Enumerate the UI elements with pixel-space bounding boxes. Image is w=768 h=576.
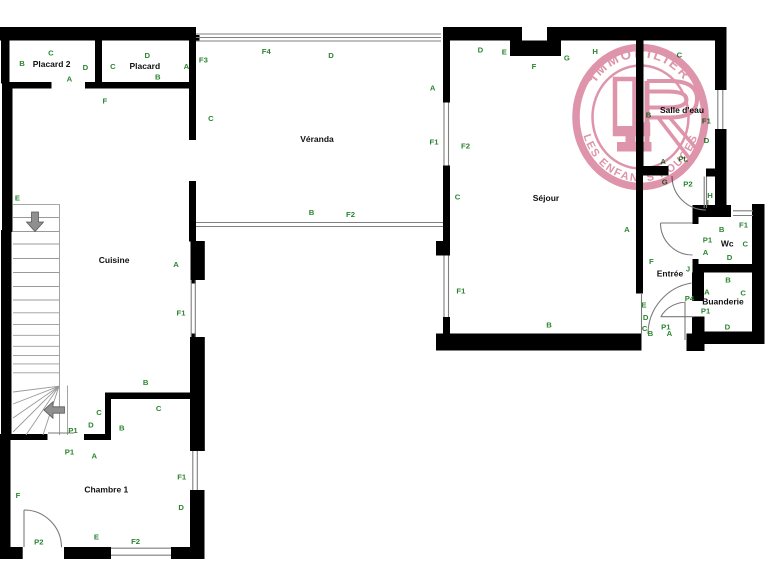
svg-text:D: D (478, 46, 484, 55)
svg-text:P1: P1 (68, 426, 78, 435)
svg-text:J: J (686, 265, 690, 274)
svg-text:F4: F4 (262, 47, 272, 56)
svg-text:H: H (592, 47, 598, 56)
svg-text:A: A (184, 62, 190, 71)
svg-text:D: D (83, 63, 89, 72)
svg-text:B: B (119, 423, 125, 432)
svg-text:A: A (173, 260, 179, 269)
svg-text:G: G (564, 54, 570, 63)
svg-text:C: C (110, 62, 116, 71)
svg-text:B: B (155, 72, 161, 81)
svg-text:B: B (19, 59, 25, 68)
svg-text:Buanderie: Buanderie (702, 297, 744, 307)
svg-text:Wc: Wc (721, 239, 734, 249)
svg-text:F1: F1 (177, 472, 187, 481)
svg-text:B: B (725, 276, 731, 285)
svg-text:F: F (16, 491, 21, 500)
svg-text:B: B (648, 329, 654, 338)
svg-text:P1: P1 (65, 448, 75, 457)
svg-text:A: A (703, 248, 709, 257)
svg-text:A: A (430, 84, 436, 93)
svg-text:P1: P1 (701, 306, 711, 315)
svg-text:F3: F3 (199, 55, 208, 64)
svg-text:F2: F2 (346, 210, 355, 219)
svg-text:Cuisine: Cuisine (99, 255, 130, 265)
svg-text:A: A (92, 451, 98, 460)
svg-text:D: D (328, 51, 334, 60)
svg-text:C: C (743, 240, 749, 249)
svg-text:A: A (624, 225, 630, 234)
svg-text:Placard 2: Placard 2 (33, 59, 71, 69)
svg-text:C: C (208, 114, 214, 123)
svg-text:B: B (719, 225, 725, 234)
svg-text:D: D (145, 51, 151, 60)
svg-text:C: C (96, 408, 102, 417)
svg-text:E: E (641, 300, 646, 309)
svg-text:B: B (546, 321, 552, 330)
svg-text:F2: F2 (131, 537, 140, 546)
svg-text:C: C (740, 289, 746, 298)
svg-text:B: B (143, 378, 149, 387)
svg-text:F: F (649, 257, 654, 266)
svg-text:Séjour: Séjour (533, 193, 560, 203)
svg-text:Véranda: Véranda (300, 134, 334, 144)
svg-text:P2: P2 (683, 180, 692, 189)
svg-text:P4: P4 (685, 294, 695, 303)
svg-text:A: A (67, 75, 73, 84)
svg-text:F: F (532, 62, 537, 71)
svg-text:F1: F1 (739, 220, 749, 229)
svg-text:F1: F1 (177, 308, 187, 317)
svg-text:D: D (725, 323, 731, 332)
svg-text:Placard: Placard (129, 61, 160, 71)
svg-text:E: E (94, 532, 99, 541)
svg-text:C: C (455, 193, 461, 202)
svg-text:F2: F2 (461, 142, 470, 151)
svg-text:C: C (156, 404, 162, 413)
svg-text:I: I (707, 198, 709, 207)
svg-text:Chambre 1: Chambre 1 (84, 485, 128, 495)
svg-text:A: A (704, 288, 710, 297)
svg-text:P1: P1 (703, 236, 713, 245)
svg-text:F: F (102, 97, 107, 106)
svg-text:D: D (88, 421, 94, 430)
svg-text:D: D (178, 503, 184, 512)
svg-text:D: D (727, 253, 733, 262)
svg-text:P2: P2 (34, 537, 43, 546)
svg-text:D: D (643, 313, 649, 322)
svg-text:E: E (502, 47, 507, 56)
svg-text:F1: F1 (430, 138, 440, 147)
svg-text:A: A (667, 329, 673, 338)
svg-text:F1: F1 (456, 286, 466, 295)
svg-text:Entrée: Entrée (657, 269, 684, 279)
svg-text:C: C (48, 49, 54, 58)
svg-text:E: E (15, 193, 20, 202)
svg-text:B: B (309, 208, 315, 217)
